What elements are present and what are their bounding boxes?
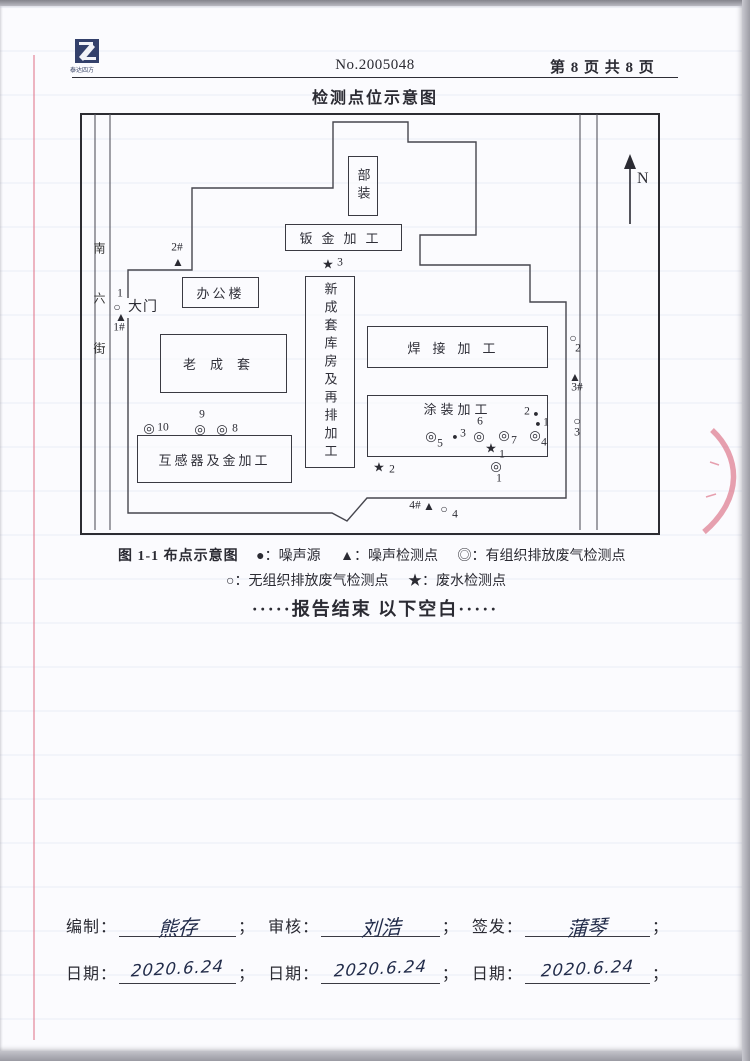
issued-handwriting: 蒲琴 (567, 911, 608, 943)
marker-label: 3 (574, 427, 580, 439)
date-2: 2020.6.24 (321, 959, 440, 984)
report-end-note: ·····报告结束 以下空白····· (0, 595, 750, 621)
date-3-handwriting: 2020.6.24 (540, 957, 635, 981)
organized_gas-icon: ◎ (473, 430, 484, 443)
building-bangonglou: 办公楼 (182, 277, 259, 308)
date-1-handwriting: 2020.6.24 (130, 957, 225, 981)
legend-noise-point: ▲：噪声检测点 (340, 549, 438, 564)
wastewater-icon: ★ (322, 258, 334, 271)
noise_point-icon: ▲ (172, 256, 184, 268)
separator: ； (442, 960, 458, 984)
organized_gas-icon: ◎ (425, 430, 436, 443)
issued-label: 签发： (472, 913, 523, 937)
building-label: 焊接加工 (407, 338, 507, 357)
prepared-signature: 熊存 (119, 912, 236, 937)
date-label-3: 日期： (472, 960, 523, 984)
signature-row-dates: 日期： 2020.6.24 ； 日期： 2020.6.24 ； 日期： 2020… (66, 959, 682, 984)
building-laochengtao: 老成套 (160, 334, 287, 393)
prepared-handwriting: 熊存 (157, 911, 198, 943)
reviewed-handwriting: 刘浩 (360, 911, 401, 943)
legend-wastewater: ★：废水检测点 (408, 574, 506, 589)
building-label: 部装 (354, 168, 373, 204)
marker-label: 10 (157, 422, 169, 434)
marker-label: 1 (117, 288, 123, 300)
marker-label: 4 (452, 509, 458, 521)
figure-caption: 图 1-1 布点示意图 (118, 549, 239, 564)
legend-line-2: ○：无组织排放废气检测点 ★：废水检测点 (226, 570, 646, 590)
marker-label: 2 (389, 464, 395, 476)
reviewed-label: 审核： (268, 913, 319, 937)
reviewed-signature: 刘浩 (321, 912, 440, 937)
marker-label: 2 (524, 406, 530, 418)
organized_gas-icon: ◎ (490, 460, 501, 473)
issued-signature: 蒲琴 (525, 912, 650, 937)
legend-noise-source: ●：噪声源 (256, 549, 320, 564)
organized_gas-icon: ◎ (143, 422, 154, 435)
building-banjin: 钣金加工 (285, 224, 402, 251)
building-hanjie: 焊接加工 (367, 326, 548, 368)
unorganized_gas-icon: ○ (440, 503, 447, 515)
noise_source-icon: ● (452, 433, 457, 442)
marker-label: 1 (543, 417, 549, 429)
marker-label: 3 (337, 257, 343, 269)
building-label: 老成套 (183, 354, 264, 373)
marker-label: 4# (409, 500, 421, 512)
marker-label: 5 (437, 438, 443, 450)
date-3: 2020.6.24 (525, 959, 650, 984)
organized_gas-icon: ◎ (529, 429, 540, 442)
separator: ； (652, 960, 668, 984)
separator: ； (442, 913, 458, 937)
building-label: 新成套库房及再排加工 (321, 282, 340, 462)
noise_point-icon: ▲ (423, 500, 435, 512)
building-xinchengtao: 新成套库房及再排加工 (305, 276, 355, 468)
marker-label: 3 (460, 428, 466, 440)
building-buzhuang: 部装 (348, 156, 378, 216)
date-label-2: 日期： (268, 960, 319, 984)
marker-label: 4 (541, 437, 547, 449)
gate-label: 大门 (128, 296, 158, 316)
building-label: 钣金加工 (299, 228, 387, 247)
wastewater-icon: ★ (485, 442, 497, 455)
legend-organized-gas: ◎：有组织排放废气检测点 (458, 549, 626, 564)
marker-label: 2# (171, 242, 183, 254)
marker-label: 9 (199, 409, 205, 421)
legend-unorganized-gas: ○：无组织排放废气检测点 (226, 574, 388, 589)
marker-label: 1# (113, 322, 125, 334)
marker-label: 8 (232, 423, 238, 435)
north-arrow-icon (624, 154, 636, 224)
marker-label: 6 (477, 416, 483, 428)
noise_source-icon: ● (533, 410, 538, 419)
signature-block: 编制： 熊存 ； 审核： 刘浩 ； 签发： 蒲琴 ； 日期： 2020.6.24… (66, 912, 682, 1006)
separator: ； (238, 960, 254, 984)
building-tuzhuang: 涂装加工 (367, 395, 548, 457)
organized_gas-icon: ◎ (216, 423, 227, 436)
organized_gas-icon: ◎ (194, 423, 205, 436)
building-label: 互感器及金加工 (158, 450, 270, 469)
marker-label: 1 (496, 473, 502, 485)
building-huganqi: 互感器及金加工 (137, 435, 292, 483)
wastewater-icon: ★ (373, 461, 385, 474)
marker-label: 7 (511, 435, 517, 447)
legend-line-1: 图 1-1 布点示意图 ●：噪声源 ▲：噪声检测点 ◎：有组织排放废气检测点 (118, 545, 658, 565)
separator: ； (238, 913, 254, 937)
prepared-label: 编制： (66, 913, 117, 937)
date-1: 2020.6.24 (119, 959, 236, 984)
signature-row-names: 编制： 熊存 ； 审核： 刘浩 ； 签发： 蒲琴 ； (66, 912, 682, 937)
date-label-1: 日期： (66, 960, 117, 984)
north-label: N (637, 170, 649, 188)
organized_gas-icon: ◎ (498, 429, 509, 442)
stamp-arc (704, 430, 734, 532)
date-2-handwriting: 2020.6.24 (333, 957, 428, 981)
street-name-label: 南六街 (92, 242, 108, 392)
unorganized_gas-icon: ○ (573, 415, 580, 427)
marker-label: 3# (571, 382, 583, 394)
building-label: 办公楼 (196, 283, 244, 302)
marker-label: 2 (575, 343, 581, 355)
separator: ； (652, 913, 668, 937)
